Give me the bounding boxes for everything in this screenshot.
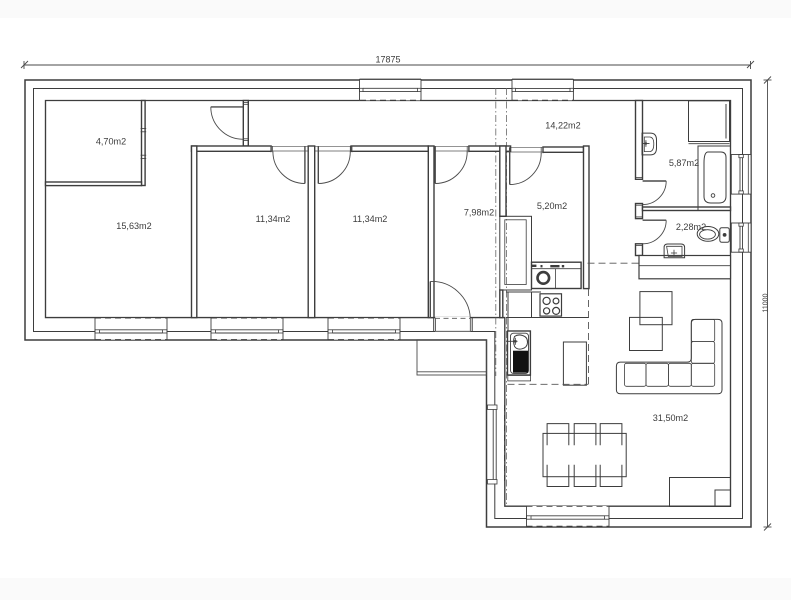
svg-text:14,22m2: 14,22m2 — [545, 121, 580, 131]
svg-text:11,34m2: 11,34m2 — [256, 214, 291, 224]
svg-text:2,28m2: 2,28m2 — [676, 222, 706, 232]
svg-text:15,63m2: 15,63m2 — [116, 221, 151, 231]
svg-text:11,34m2: 11,34m2 — [353, 214, 388, 224]
svg-text:5,20m2: 5,20m2 — [537, 201, 567, 211]
svg-text:11000: 11000 — [762, 293, 769, 312]
svg-text:5,87m2: 5,87m2 — [669, 158, 699, 168]
svg-text:31,50m2: 31,50m2 — [653, 413, 688, 423]
svg-text:7,98m2: 7,98m2 — [464, 208, 494, 218]
svg-text:4,70m2: 4,70m2 — [96, 137, 126, 147]
svg-text:17875: 17875 — [375, 55, 400, 65]
